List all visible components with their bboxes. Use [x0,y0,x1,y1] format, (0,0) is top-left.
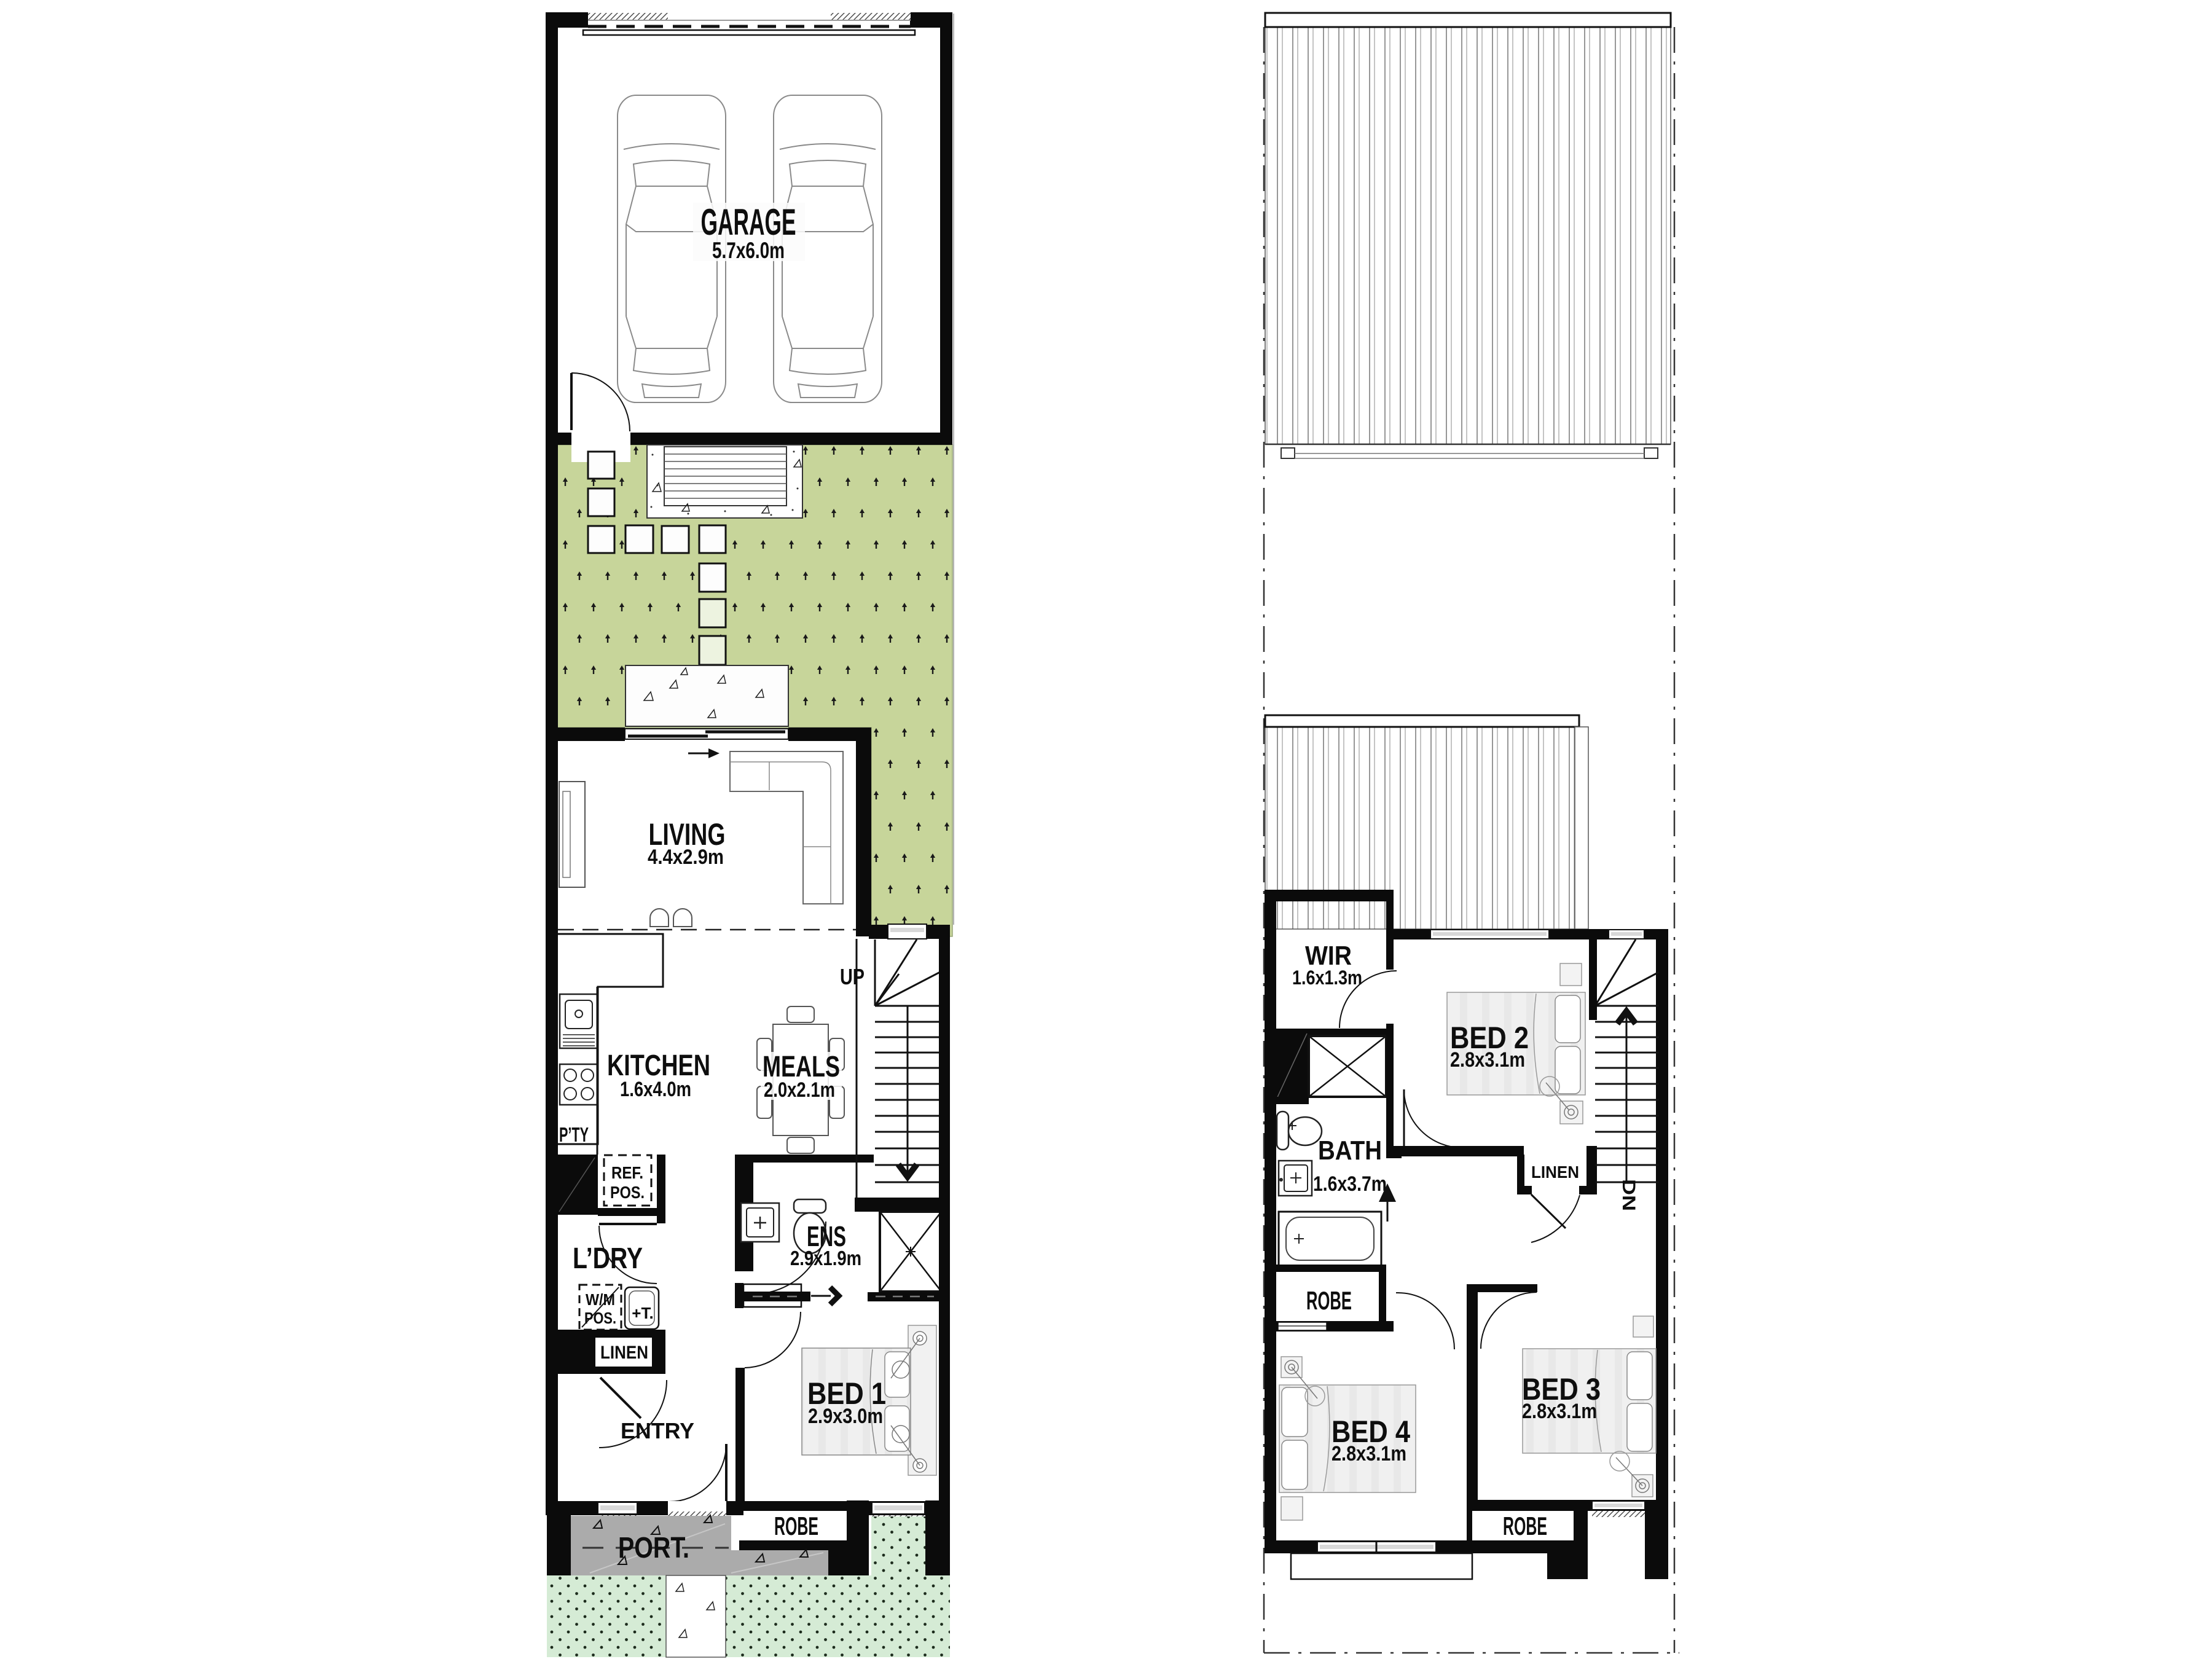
svg-text:1.6x3.7m: 1.6x3.7m [1313,1172,1387,1196]
svg-text:1.6x1.3m: 1.6x1.3m [1292,967,1362,989]
svg-text:LINEN: LINEN [600,1343,648,1363]
svg-text:+T.: +T. [632,1304,653,1322]
svg-text:UP: UP [840,964,865,989]
svg-text:LINEN: LINEN [1531,1163,1579,1182]
svg-text:BATH: BATH [1318,1135,1382,1166]
svg-text:ROBE: ROBE [1503,1512,1547,1540]
svg-text:4.4x2.9m: 4.4x2.9m [648,845,724,869]
svg-text:2.8x3.1m: 2.8x3.1m [1450,1048,1525,1072]
svg-text:2.0x2.1m: 2.0x2.1m [764,1078,835,1102]
svg-text:ENTRY: ENTRY [621,1418,694,1443]
svg-text:L’DRY: L’DRY [573,1242,643,1275]
svg-text:ROBE: ROBE [1306,1286,1352,1315]
svg-text:1.6x4.0m: 1.6x4.0m [620,1078,691,1101]
svg-text:PORT.: PORT. [618,1532,689,1564]
svg-text:5.7x6.0m: 5.7x6.0m [712,238,785,263]
svg-text:P’TY: P’TY [559,1123,589,1146]
svg-text:POS.: POS. [584,1309,616,1327]
svg-text:DN: DN [1618,1179,1639,1211]
svg-text:2.9x3.0m: 2.9x3.0m [808,1405,883,1428]
svg-text:2.8x3.1m: 2.8x3.1m [1522,1400,1597,1423]
svg-text:REF.: REF. [611,1163,643,1182]
svg-text:2.9x1.9m: 2.9x1.9m [790,1247,861,1269]
svg-text:GARAGE: GARAGE [701,202,796,243]
svg-text:POS.: POS. [610,1183,645,1202]
svg-text:W/M: W/M [586,1290,615,1309]
svg-text:2.8x3.1m: 2.8x3.1m [1332,1442,1406,1465]
svg-text:ROBE: ROBE [774,1512,818,1540]
